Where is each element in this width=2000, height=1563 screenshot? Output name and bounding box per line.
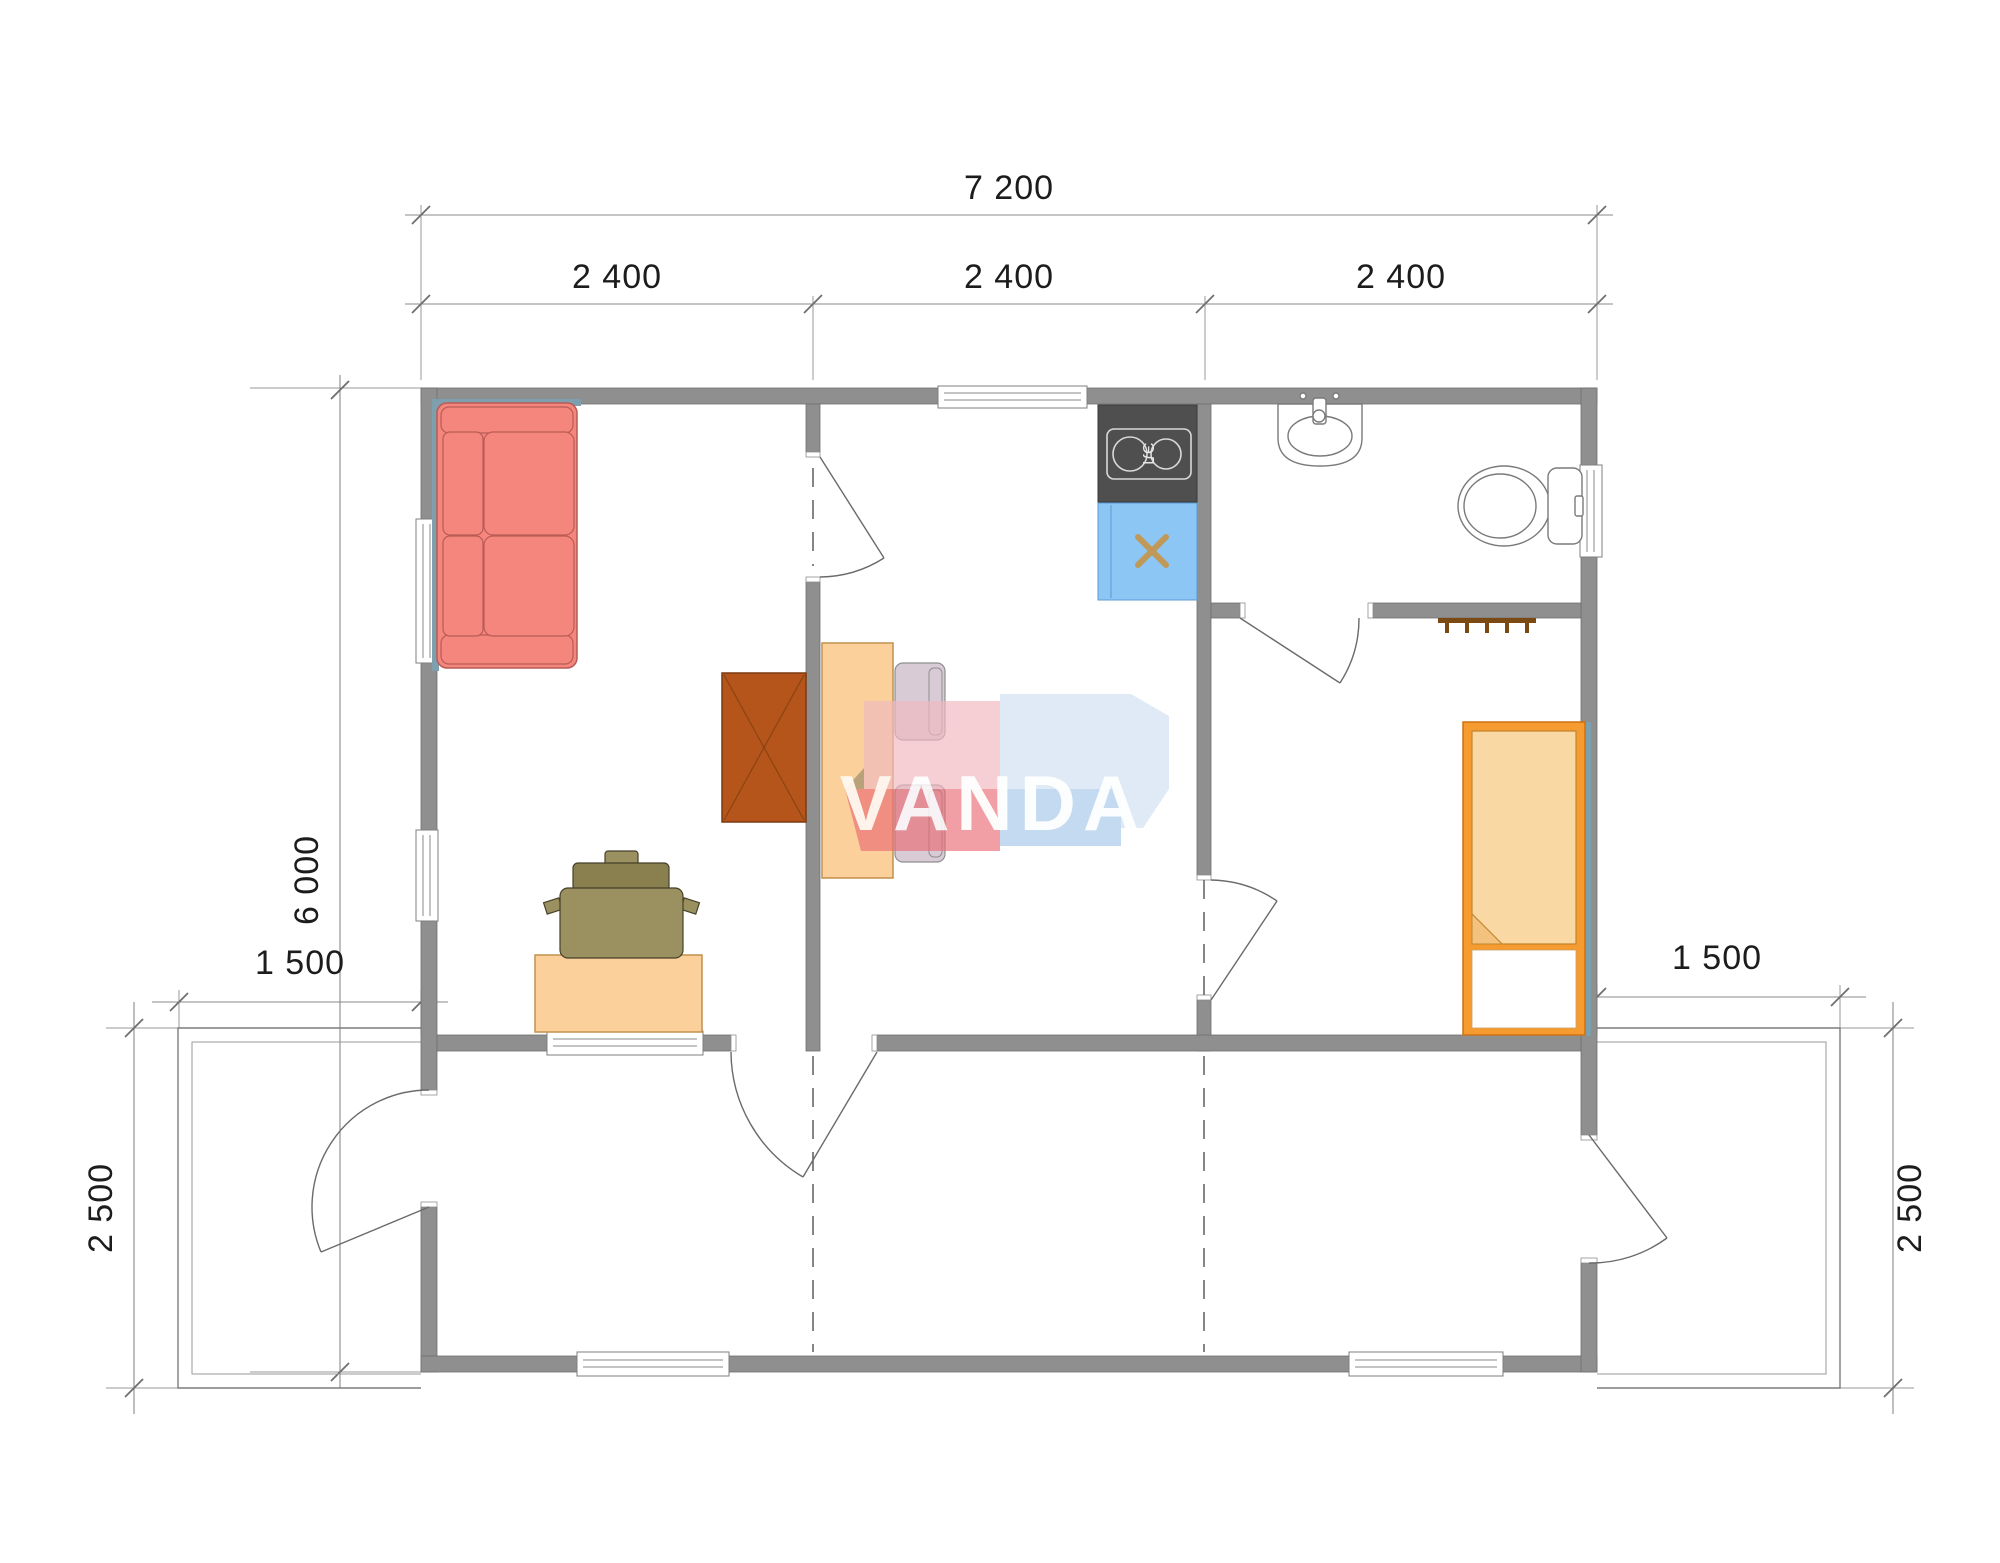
dim-terrace-right-depth: 2 500 [1891,1163,1929,1253]
window-bottom-right [1349,1352,1503,1376]
kitchen-sink-unit [1098,503,1197,600]
bed [1463,722,1591,1036]
workplace [535,851,702,1032]
toilet [1458,466,1583,546]
window-living-2 [416,830,438,921]
bed-pillow-area [1472,950,1576,1028]
dim-module-2: 2 400 [964,258,1054,296]
wall-left-3 [421,921,437,1090]
door-bathroom [1240,618,1359,683]
door-leaf [1240,618,1340,683]
door-swing-arc [312,1090,429,1252]
office-chair-back [573,863,669,891]
stove-label: ЭЛ [1139,442,1156,465]
wall-living-kitchen-top [806,404,820,452]
door-bedroom [1211,880,1277,1000]
door-leaf [321,1207,429,1252]
door-terrace-left [312,1090,429,1252]
window-frame [416,830,438,921]
wall-right-3 [1581,1263,1597,1372]
dim-module-3: 2 400 [1356,258,1446,296]
washbasin-tap-dot [1333,393,1339,399]
terrace-right-inner [1597,1042,1826,1374]
wall-left-2 [421,663,437,830]
door-leaf [1589,1135,1667,1238]
door-jamb [806,577,820,582]
door-living-kitchen [820,457,884,577]
sofa-armrest-top [441,407,573,433]
hook [1465,623,1469,633]
door-jamb [731,1035,736,1051]
wall-veranda-2 [703,1035,731,1051]
wall-kitchen-bedroom-top [1197,404,1211,875]
hook [1485,623,1489,633]
door-veranda-main [731,1052,877,1177]
wall-bath-bedroom-right [1373,603,1581,618]
wall-living-kitchen-bottom [806,582,820,1051]
sofa-seat-cushion [484,432,574,535]
toilet-seat [1464,474,1536,538]
watermark: VANDA [840,694,1169,851]
dim-module-1: 2 400 [572,258,662,296]
hook [1525,623,1529,633]
door-swing-arc [1211,880,1277,901]
wall-bath-bedroom-left [1211,603,1240,618]
sofa-seat-cushion [484,536,574,636]
office-chair [544,851,700,958]
washbasin-faucet-head [1313,410,1325,422]
washbasin [1278,393,1362,466]
wall-veranda-1 [437,1035,547,1051]
door-jamb [421,1202,437,1207]
terrace-left-outline [178,1028,421,1388]
door-swing-arc [1589,1238,1667,1263]
office-chair-seat [560,888,683,958]
door-jamb [806,452,820,457]
hook [1445,623,1449,633]
window-frame [938,386,1087,408]
bed-blanket [1472,731,1576,944]
door-leaf [1211,901,1277,1000]
desk [535,955,702,1032]
window-frame [547,1031,703,1055]
window-bottom-left [577,1352,729,1376]
kitchen-counter: ЭЛ [1098,405,1197,502]
door-jamb [1368,603,1373,618]
dim-terrace-left-depth: 2 500 [82,1163,120,1253]
dim-total-width: 7 200 [964,169,1054,207]
watermark-text: VANDA [840,759,1147,847]
toilet-flush-button [1575,496,1583,516]
sofa [432,399,581,671]
wall-right-1 [1581,388,1597,465]
window-kitchen-top [938,386,1087,408]
window-frame [577,1352,729,1376]
sofa-back-cushion [443,432,483,535]
door-leaf [820,457,884,558]
washbasin-tap-dot [1300,393,1306,399]
window-veranda-desk [547,1031,703,1055]
terrace-right-outline [1597,1028,1840,1388]
sofa-back-cushion [443,536,483,636]
terrace-left-inner [192,1042,421,1374]
bed-shadow [1585,722,1591,1035]
wall-bottom-1 [421,1356,577,1372]
sofa-armrest-bottom [441,635,573,664]
floor-plan-canvas: 7 200 2 400 2 400 2 400 6 000 1 500 2 50… [0,0,2000,1563]
wall-veranda-3 [877,1035,1581,1051]
dim-total-depth: 6 000 [288,835,326,925]
door-swing-arc [731,1052,803,1177]
door-swing-arc [1340,618,1359,683]
wall-bottom-2 [729,1356,1349,1372]
hook-rail [1438,618,1536,623]
dim-terrace-right-width: 1 500 [1672,939,1762,977]
wardrobe [722,673,806,822]
wall-left-4 [421,1207,437,1372]
coat-hooks [1438,618,1536,633]
module-joint-lines [813,468,1204,1352]
door-swing-arc [820,558,884,577]
door-jamb [1581,1258,1597,1263]
door-terrace-right [1589,1135,1667,1263]
door-jamb [872,1035,877,1051]
door-jamb [1197,875,1211,880]
door-leaf [803,1052,877,1177]
window-frame [1349,1352,1503,1376]
door-jamb [1197,995,1211,1000]
hook [1505,623,1509,633]
wall-top-right [1087,388,1597,404]
dim-terrace-left-width: 1 500 [255,944,345,982]
door-jamb [1240,603,1245,618]
